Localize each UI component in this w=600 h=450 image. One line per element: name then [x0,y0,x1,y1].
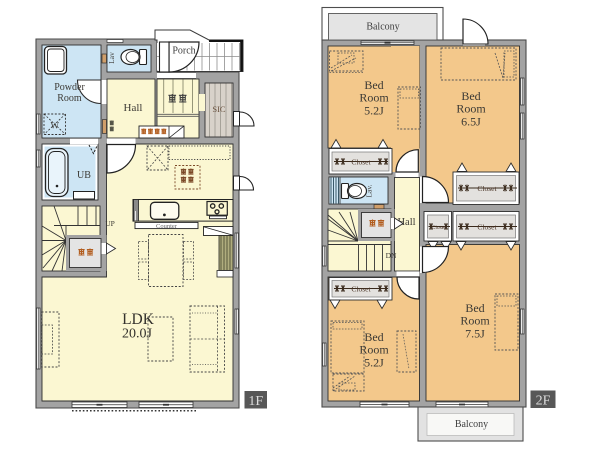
svg-text:Room: Room [57,93,82,104]
svg-text:Closet: Closet [351,284,371,293]
svg-text:Room: Room [456,102,486,116]
svg-text:UB: UB [77,170,91,181]
svg-text:SIC: SIC [212,104,226,114]
svg-text:Closet: Closet [351,157,371,166]
svg-text:LDK: LDK [122,311,155,328]
svg-text:7.5J: 7.5J [465,327,485,341]
svg-text:UP: UP [105,219,115,228]
svg-text:Balcony: Balcony [455,419,488,430]
svg-text:Powder: Powder [54,82,85,93]
svg-text:Balcony: Balcony [366,22,399,33]
svg-text:Room: Room [359,91,389,105]
svg-text:DN: DN [386,251,397,260]
svg-text:Closet: Closet [432,225,447,231]
svg-text:2F: 2F [536,394,551,409]
svg-text:W: W [50,121,59,131]
svg-text:Closet: Closet [477,222,497,231]
svg-text:Counter: Counter [156,223,178,230]
svg-text:Porch: Porch [172,46,195,57]
svg-text:Room: Room [359,343,389,357]
svg-text:5.2J: 5.2J [364,356,384,370]
svg-text:5.2J: 5.2J [364,104,384,118]
svg-text:Closet: Closet [477,184,497,193]
svg-text:Room: Room [460,314,490,328]
svg-text:Lav: Lav [107,52,116,64]
svg-text:Hall: Hall [124,102,143,114]
svg-text:1F: 1F [248,394,263,409]
svg-text:6.5J: 6.5J [461,115,481,129]
svg-text:Lav.: Lav. [365,184,374,197]
